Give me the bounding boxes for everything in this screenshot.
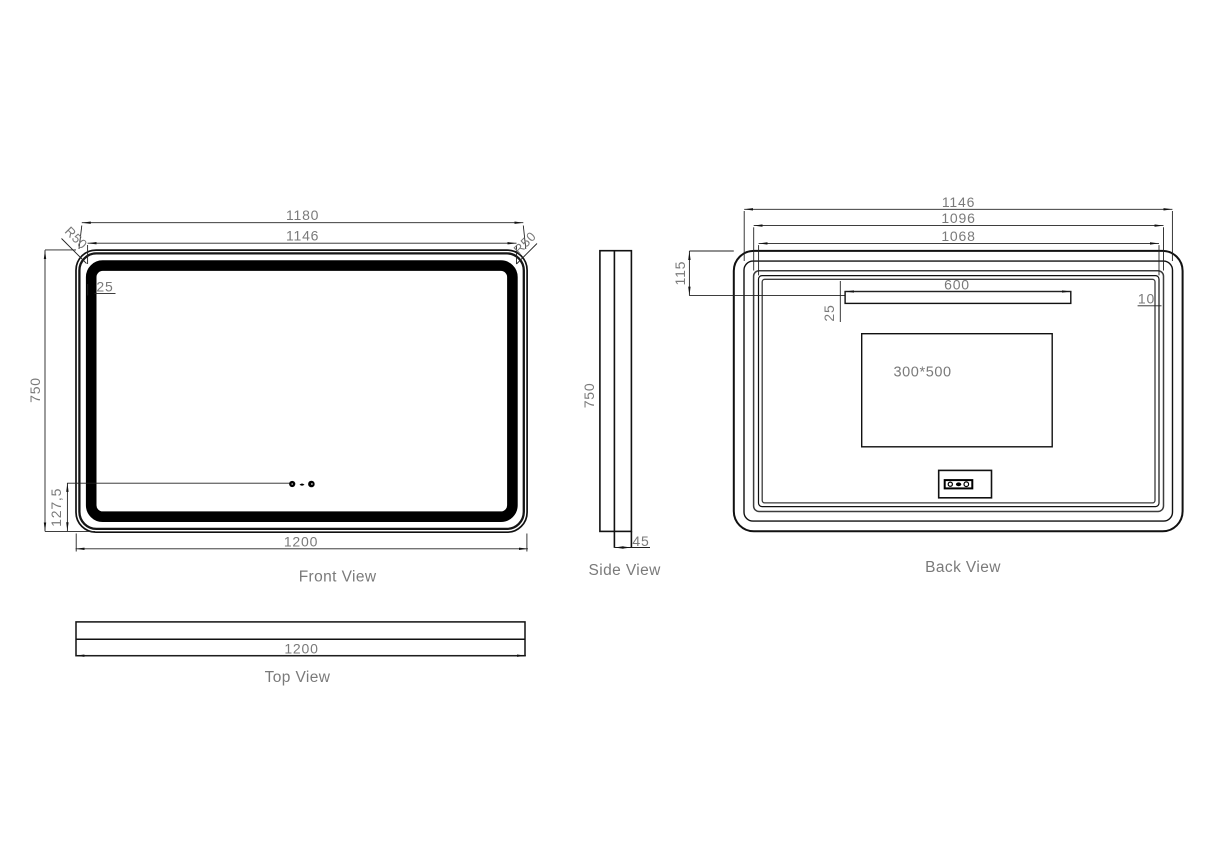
svg-text:600: 600 — [944, 277, 970, 293]
svg-text:115: 115 — [672, 261, 688, 286]
svg-text:Top View: Top View — [265, 669, 331, 686]
svg-text:1180: 1180 — [286, 207, 319, 223]
svg-text:127,5: 127,5 — [48, 488, 64, 527]
svg-text:750: 750 — [27, 377, 43, 403]
svg-text:25: 25 — [821, 304, 837, 321]
svg-text:25: 25 — [96, 279, 113, 295]
svg-text:45: 45 — [632, 533, 649, 549]
svg-text:R50: R50 — [62, 224, 91, 253]
svg-text:1200: 1200 — [284, 641, 318, 657]
svg-text:1146: 1146 — [286, 228, 319, 244]
svg-text:1068: 1068 — [941, 228, 975, 244]
svg-text:1146: 1146 — [942, 194, 975, 210]
svg-text:10: 10 — [1138, 291, 1155, 307]
svg-text:1200: 1200 — [284, 533, 318, 549]
svg-text:300*500: 300*500 — [893, 365, 951, 381]
svg-text:R50: R50 — [511, 229, 540, 258]
svg-text:Front View: Front View — [299, 569, 377, 586]
svg-text:750: 750 — [581, 383, 597, 409]
svg-text:Side View: Side View — [589, 562, 662, 579]
svg-text:Back View: Back View — [925, 559, 1001, 576]
svg-text:1096: 1096 — [941, 210, 975, 226]
